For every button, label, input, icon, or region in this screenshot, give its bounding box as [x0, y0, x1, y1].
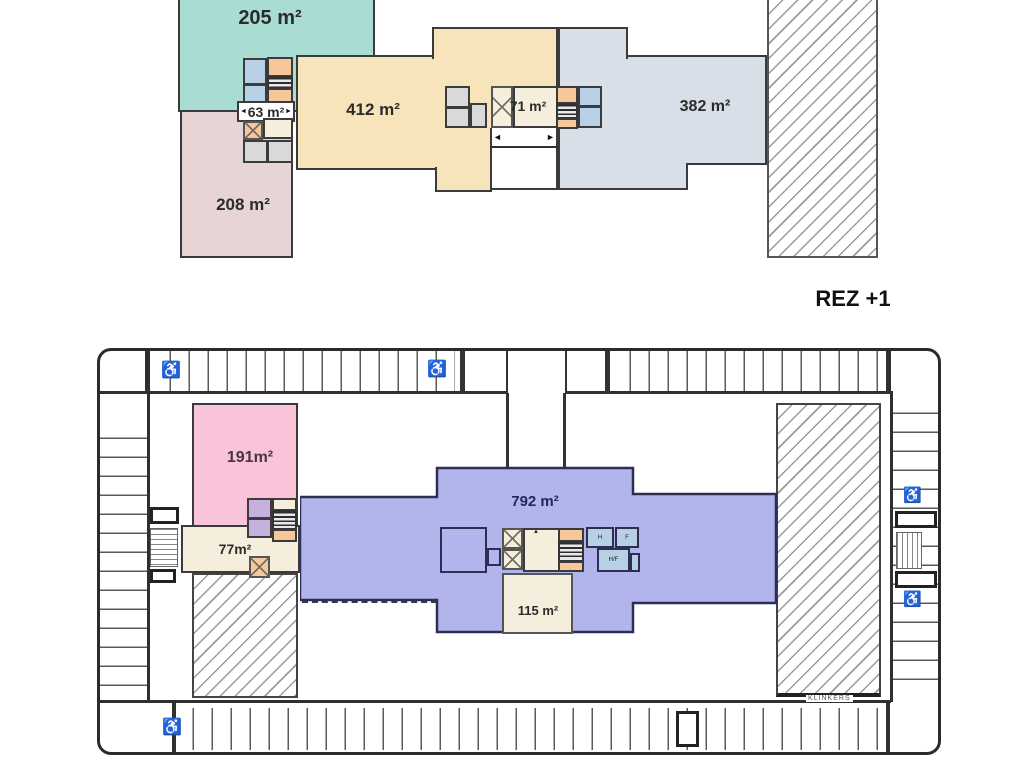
room-small-orange — [267, 57, 293, 77]
accessible-parking-icon: ♿ — [161, 363, 181, 379]
door-arrow-right: ► — [285, 108, 292, 115]
hatched-area-right — [776, 403, 881, 697]
room-hf: H/F — [597, 548, 630, 572]
room-h: H — [586, 527, 614, 548]
stairwell — [558, 541, 584, 562]
room-small-cream — [263, 118, 293, 139]
dashed-boundary — [302, 601, 437, 603]
corner-wall-top-right — [886, 351, 891, 393]
exterior-stair — [150, 528, 178, 567]
room-hf-label: H/F — [609, 557, 619, 563]
room-tiny-blue — [630, 553, 640, 572]
utility-box — [565, 351, 610, 393]
upper-floor-plan: ◄ 63 m² ► 71 m² ◄ ► 205 m² 208 m² 412 m²… — [0, 0, 1024, 330]
service-box — [150, 569, 176, 583]
parking-row-top-left — [152, 351, 455, 391]
corner-wall-bottom-right — [886, 703, 890, 752]
service-box — [895, 511, 937, 528]
service-box — [895, 571, 937, 588]
lobby-left-label: 77m² — [195, 542, 275, 556]
room-small-orange — [272, 529, 297, 542]
accessible-parking-icon: ♿ — [162, 720, 182, 736]
parking-row-bottom — [175, 708, 888, 750]
inner-wall-right — [890, 393, 893, 702]
room-small-gray — [445, 86, 470, 108]
parking-row-left — [100, 420, 147, 695]
room-small-orange — [558, 528, 584, 542]
service-box — [676, 711, 699, 747]
inner-wall-bottom — [100, 700, 891, 703]
room-small-gray — [267, 140, 293, 163]
elevator-shaft-icon — [243, 121, 263, 140]
room-h-label: H — [598, 535, 602, 541]
room-small-lavender — [247, 518, 272, 538]
accessible-parking-icon: ♿ — [903, 488, 922, 503]
parking-row-top-right — [612, 351, 888, 391]
room-small-blue — [578, 86, 602, 107]
zone-tan-top — [432, 27, 558, 59]
door-arrow-right: ► — [546, 132, 555, 142]
inner-wall-top-right — [565, 391, 893, 394]
room-small-gray — [243, 140, 268, 163]
zone-tan-step — [435, 167, 492, 192]
room-small-gray — [470, 103, 487, 128]
elevator-shaft-icon — [502, 528, 523, 549]
zone-tan-label: 412 m² — [318, 101, 428, 118]
exterior-stair — [896, 532, 922, 569]
room-f: F — [615, 527, 639, 548]
room-small-blue — [243, 58, 267, 85]
neighbor-building-hatched — [767, 0, 878, 258]
elevator-shaft-icon — [249, 556, 270, 578]
room-small-blue — [578, 106, 602, 128]
zone-pink-label: 191m² — [200, 450, 300, 466]
zone-71-label: 71 m² — [496, 99, 560, 113]
zone-blue-step — [558, 163, 688, 190]
room-small-orange — [556, 118, 578, 129]
utility-box — [460, 351, 508, 393]
room-small-lavender — [247, 498, 272, 519]
zone-blue-label: 382 m² — [655, 99, 755, 115]
floor-title: REZ +1 — [798, 288, 908, 310]
door-arrow-left: ◄ — [240, 108, 247, 115]
room-small-orange — [558, 561, 584, 572]
elevator-shaft-icon — [502, 549, 523, 570]
door-arrow-left: ◄ — [493, 132, 502, 142]
lobby-bottom-label: 115 m² — [503, 604, 573, 617]
floor-plan-canvas: ◄ 63 m² ► 71 m² ◄ ► 205 m² 208 m² 412 m²… — [0, 0, 1024, 768]
room-tiny — [487, 548, 501, 566]
core-lobby — [523, 528, 561, 572]
entrance-corridor — [506, 393, 566, 470]
room-small-gray — [445, 107, 470, 128]
hatched-area-left — [192, 573, 298, 698]
zone-teal-label: 205 m² — [200, 8, 340, 28]
zone-purple-label: 792 m² — [490, 494, 580, 509]
zone-blue-top — [558, 27, 628, 59]
open-room — [440, 527, 487, 573]
inner-wall-top-left — [100, 391, 506, 394]
accessible-parking-icon: ♿ — [903, 592, 922, 607]
stairwell — [272, 510, 297, 530]
accessible-parking-icon: ♿ — [427, 362, 447, 378]
room-f-label: F — [625, 535, 629, 541]
north-marker: ▲ — [533, 529, 539, 535]
zone-rose-label: 208 m² — [188, 196, 298, 213]
service-box — [150, 507, 179, 524]
paving-label: KLINKERS — [806, 695, 853, 702]
porch-wall — [490, 146, 558, 148]
zone-63-label: 63 m² — [248, 105, 285, 119]
corner-wall-top-left — [145, 351, 150, 393]
